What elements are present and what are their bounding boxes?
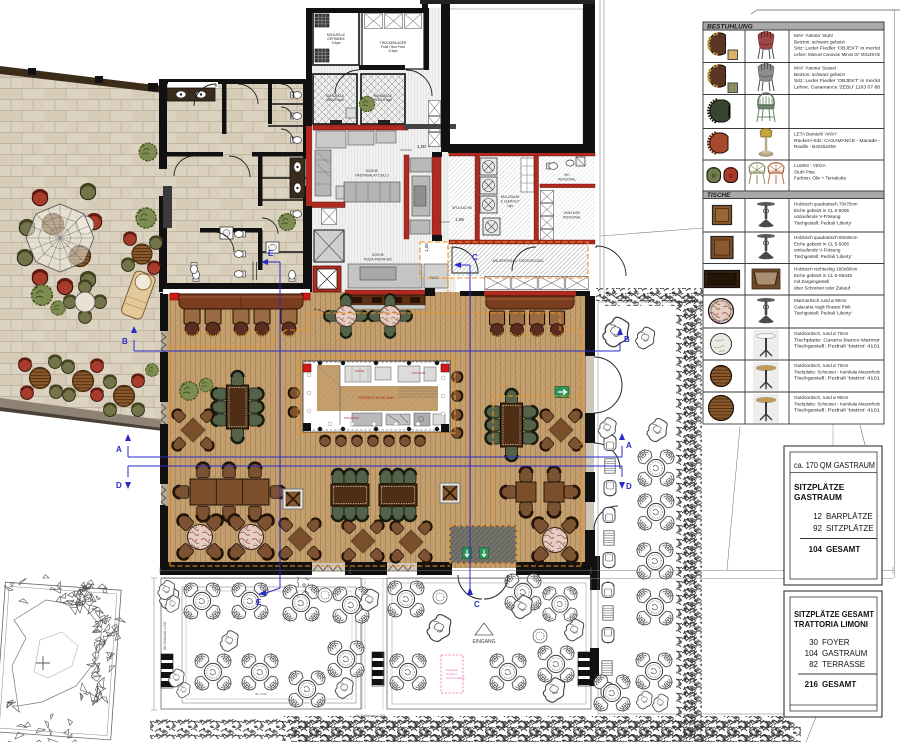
- svg-text:MAY 'Astoria' Sessel: MAY 'Astoria' Sessel: [794, 66, 836, 71]
- svg-text:46 +0.00: 46 +0.00: [255, 692, 267, 696]
- svg-text:7qm: 7qm: [507, 204, 514, 208]
- svg-text:WC: WC: [564, 173, 570, 177]
- svg-text:12: 12: [813, 512, 822, 521]
- svg-text:C: C: [474, 600, 480, 609]
- svg-text:Sonnenstation: Sonnenstation: [446, 676, 466, 680]
- svg-text:216: 216: [805, 680, 819, 689]
- svg-text:TRESEN/THEKE BAR: TRESEN/THEKE BAR: [358, 396, 394, 400]
- svg-text:D: D: [116, 481, 122, 490]
- svg-text:KÜCHE: KÜCHE: [372, 253, 385, 257]
- svg-text:ANLIEFERUNG / ENTSORGUNG: ANLIEFERUNG / ENTSORGUNG: [492, 259, 544, 263]
- svg-text:Eiche gebeizt in CL 5-S5345: Eiche gebeizt in CL 5-S5345: [794, 273, 852, 278]
- svg-text:MAY 'Astoria' Stuhl: MAY 'Astoria' Stuhl: [794, 33, 833, 38]
- svg-text:Tischplatte: Schreiner - Kamba: Tischplatte: Schreiner - Kambala Massivh…: [794, 369, 881, 374]
- svg-text:B: B: [624, 335, 630, 344]
- svg-text:Tischgestell: Pedrali 'Liberty: Tischgestell: Pedrali 'Liberty': [794, 254, 852, 259]
- svg-text:Tischgestell: Pedrali 'Liberty: Tischgestell: Pedrali 'Liberty': [794, 220, 852, 225]
- svg-text:EINGANG: EINGANG: [472, 639, 495, 645]
- svg-text:Stuhl Pisa: Stuhl Pisa: [794, 169, 815, 174]
- svg-text:Outdoortisch, rund ø 90cm: Outdoortisch, rund ø 90cm: [794, 395, 849, 400]
- svg-text:FOYER: FOYER: [822, 638, 850, 647]
- svg-text:Sitz: Leder Fiedler 'OBJEKT' i: Sitz: Leder Fiedler 'OBJEKT' in merlot: [794, 46, 881, 51]
- svg-text:GASTRAUM: GASTRAUM: [822, 649, 868, 658]
- svg-text:über Schreiner oder Zukauf: über Schreiner oder Zukauf: [794, 285, 851, 290]
- svg-text:C: C: [472, 253, 478, 262]
- svg-text:LUSINI - VEGA: LUSINI - VEGA: [794, 163, 827, 168]
- svg-text:1,00: 1,00: [417, 144, 426, 149]
- svg-text:Rücken+Sitz: CASAMANCE - Manad: Rücken+Sitz: CASAMANCE - Manade -: [794, 138, 880, 143]
- svg-text:Lehne: Manuel Canovas 'Minos O: Lehne: Manuel Canovas 'Minos Or' M4149-0…: [794, 52, 880, 57]
- svg-text:Tischplatte: Schreiner - Kamba: Tischplatte: Schreiner - Kambala Massivh…: [794, 401, 881, 406]
- svg-text:PERSONAL: PERSONAL: [558, 178, 576, 182]
- svg-text:Eiche gebeizt in CL 5-5005: Eiche gebeizt in CL 5-5005: [794, 208, 849, 213]
- svg-text:KÜHLSCHR.: KÜHLSCHR.: [412, 372, 426, 375]
- svg-text:Outdoortisch, rund ø 70cm: Outdoortisch, rund ø 70cm: [794, 363, 849, 368]
- svg-text:SPÜLMASCH.: SPÜLMASCH.: [344, 417, 360, 420]
- svg-text:Beizton: schwarz gebeizt: Beizton: schwarz gebeizt: [794, 39, 846, 44]
- svg-text:UMKLEIDE: UMKLEIDE: [564, 211, 582, 215]
- svg-text:SPÜLKÜCHE: SPÜLKÜCHE: [452, 206, 473, 210]
- svg-text:6.3qm: 6.3qm: [389, 49, 398, 53]
- svg-text:1,00: 1,00: [424, 243, 429, 252]
- svg-text:E: E: [268, 249, 274, 258]
- svg-text:Tischgestell: Pedrali 'bistrot: Tischgestell: Pedrali 'bistrot' 4101: [794, 408, 881, 413]
- svg-text:Calacatta Vagli Rosato Pink: Calacatta Vagli Rosato Pink: [794, 304, 851, 309]
- svg-text:PLUS 5.5qm: PLUS 5.5qm: [374, 98, 392, 102]
- svg-text:30: 30: [809, 638, 818, 647]
- svg-text:Eiche gebeizt in CL 5-5005: Eiche gebeizt in CL 5-5005: [794, 241, 849, 246]
- svg-text:KÜCHE: KÜCHE: [366, 169, 379, 173]
- svg-text:Beizton: schwarz gebeizt: Beizton: schwarz gebeizt: [794, 72, 846, 77]
- svg-text:3.5qm: 3.5qm: [332, 41, 341, 45]
- svg-text:B: B: [122, 337, 128, 346]
- svg-text:TERRASSE: TERRASSE: [822, 660, 865, 669]
- svg-text:Marmortisch rund ø 90cm: Marmortisch rund ø 90cm: [794, 298, 847, 303]
- svg-text:Outdoortisch, rund ø 70cm: Outdoortisch, rund ø 70cm: [794, 331, 849, 336]
- svg-text:KAFFEE: KAFFEE: [355, 370, 365, 373]
- svg-text:mit Zargengestell: mit Zargengestell: [794, 279, 829, 284]
- svg-text:SITZPLÄTZE: SITZPLÄTZE: [826, 524, 874, 533]
- svg-text:Rouille - B42454259: Rouille - B42454259: [794, 144, 836, 149]
- svg-text:MÜLLRAUM: MÜLLRAUM: [501, 195, 520, 199]
- svg-text:Holztisch quadratisch 70x70cm: Holztisch quadratisch 70x70cm: [794, 202, 858, 207]
- svg-text:Holztisch rechteckig 160x80cm: Holztisch rechteckig 160x80cm: [794, 267, 857, 272]
- svg-text:PASTA/SALAT DOLCI: PASTA/SALAT DOLCI: [355, 174, 388, 178]
- svg-text:GASTRAUM: GASTRAUM: [794, 492, 842, 502]
- svg-text:AK Gebäude 1.OG: AK Gebäude 1.OG: [163, 621, 167, 650]
- svg-text:E: E: [256, 598, 262, 607]
- svg-text:Tischplatte: Cararra bianco Ma: Tischplatte: Cararra bianco Marmor: [794, 337, 881, 342]
- svg-text:82: 82: [809, 660, 818, 669]
- svg-text:umlaufende V-Fräsung: umlaufende V-Fräsung: [794, 214, 841, 219]
- svg-text:TRATTORIA LIMONI: TRATTORIA LIMONI: [794, 619, 868, 629]
- svg-text:A: A: [116, 445, 122, 454]
- svg-text:Tischgestell: Pedrali 'Liberty: Tischgestell: Pedrali 'Liberty': [794, 311, 852, 316]
- svg-text:Farbton: Oliv + Terrakotta: Farbton: Oliv + Terrakotta: [794, 176, 846, 181]
- svg-text:umlaufende V-Fräsung: umlaufende V-Fräsung: [794, 248, 841, 253]
- svg-text:PERSONAL: PERSONAL: [563, 216, 581, 220]
- svg-text:104: 104: [805, 649, 819, 658]
- svg-text:D: D: [626, 482, 632, 491]
- svg-text:MINUS 3qm: MINUS 3qm: [326, 98, 344, 102]
- svg-text:GESAMT: GESAMT: [822, 680, 856, 689]
- svg-text:92: 92: [813, 524, 822, 533]
- svg-text:A: A: [626, 441, 632, 450]
- svg-text:BARPLÄTZE: BARPLÄTZE: [826, 512, 873, 521]
- svg-text:Tischgestell: Pedrali 'bistrot: Tischgestell: Pedrali 'bistrot' 4101: [794, 376, 881, 381]
- svg-text:GESAMT: GESAMT: [826, 545, 860, 554]
- svg-text:BESTUHLUNG: BESTUHLUNG: [707, 24, 753, 31]
- svg-text:ca. 170 QM GASTRAUM: ca. 170 QM GASTRAUM: [794, 461, 875, 470]
- svg-text:Lehne: Casamance 'ZEBU' 1163 0: Lehne: Casamance 'ZEBU' 1163 07 88: [794, 84, 880, 89]
- svg-text:LETA Barstuhl 'ANVI': LETA Barstuhl 'ANVI': [794, 132, 837, 137]
- svg-text:PIZZA-PASTA-WC: PIZZA-PASTA-WC: [364, 258, 393, 262]
- svg-text:& LEERGUT: & LEERGUT: [501, 200, 520, 204]
- svg-text:1,05: 1,05: [455, 217, 464, 222]
- svg-text:SITZPLÄTZE: SITZPLÄTZE: [794, 482, 845, 492]
- svg-text:SITZPLÄTZE GESAMT: SITZPLÄTZE GESAMT: [794, 609, 874, 619]
- svg-text:Sitz: Leder Fiedler 'OBJEKT' i: Sitz: Leder Fiedler 'OBJEKT' in merlot: [794, 78, 881, 83]
- svg-text:Holztisch quadratisch 80x80cm: Holztisch quadratisch 80x80cm: [794, 235, 858, 240]
- svg-text:TISCHE: TISCHE: [707, 192, 731, 199]
- svg-text:104: 104: [809, 545, 823, 554]
- svg-text:Tischgestell: Pedrali 'bistrot: Tischgestell: Pedrali 'bistrot' 4101: [794, 344, 881, 349]
